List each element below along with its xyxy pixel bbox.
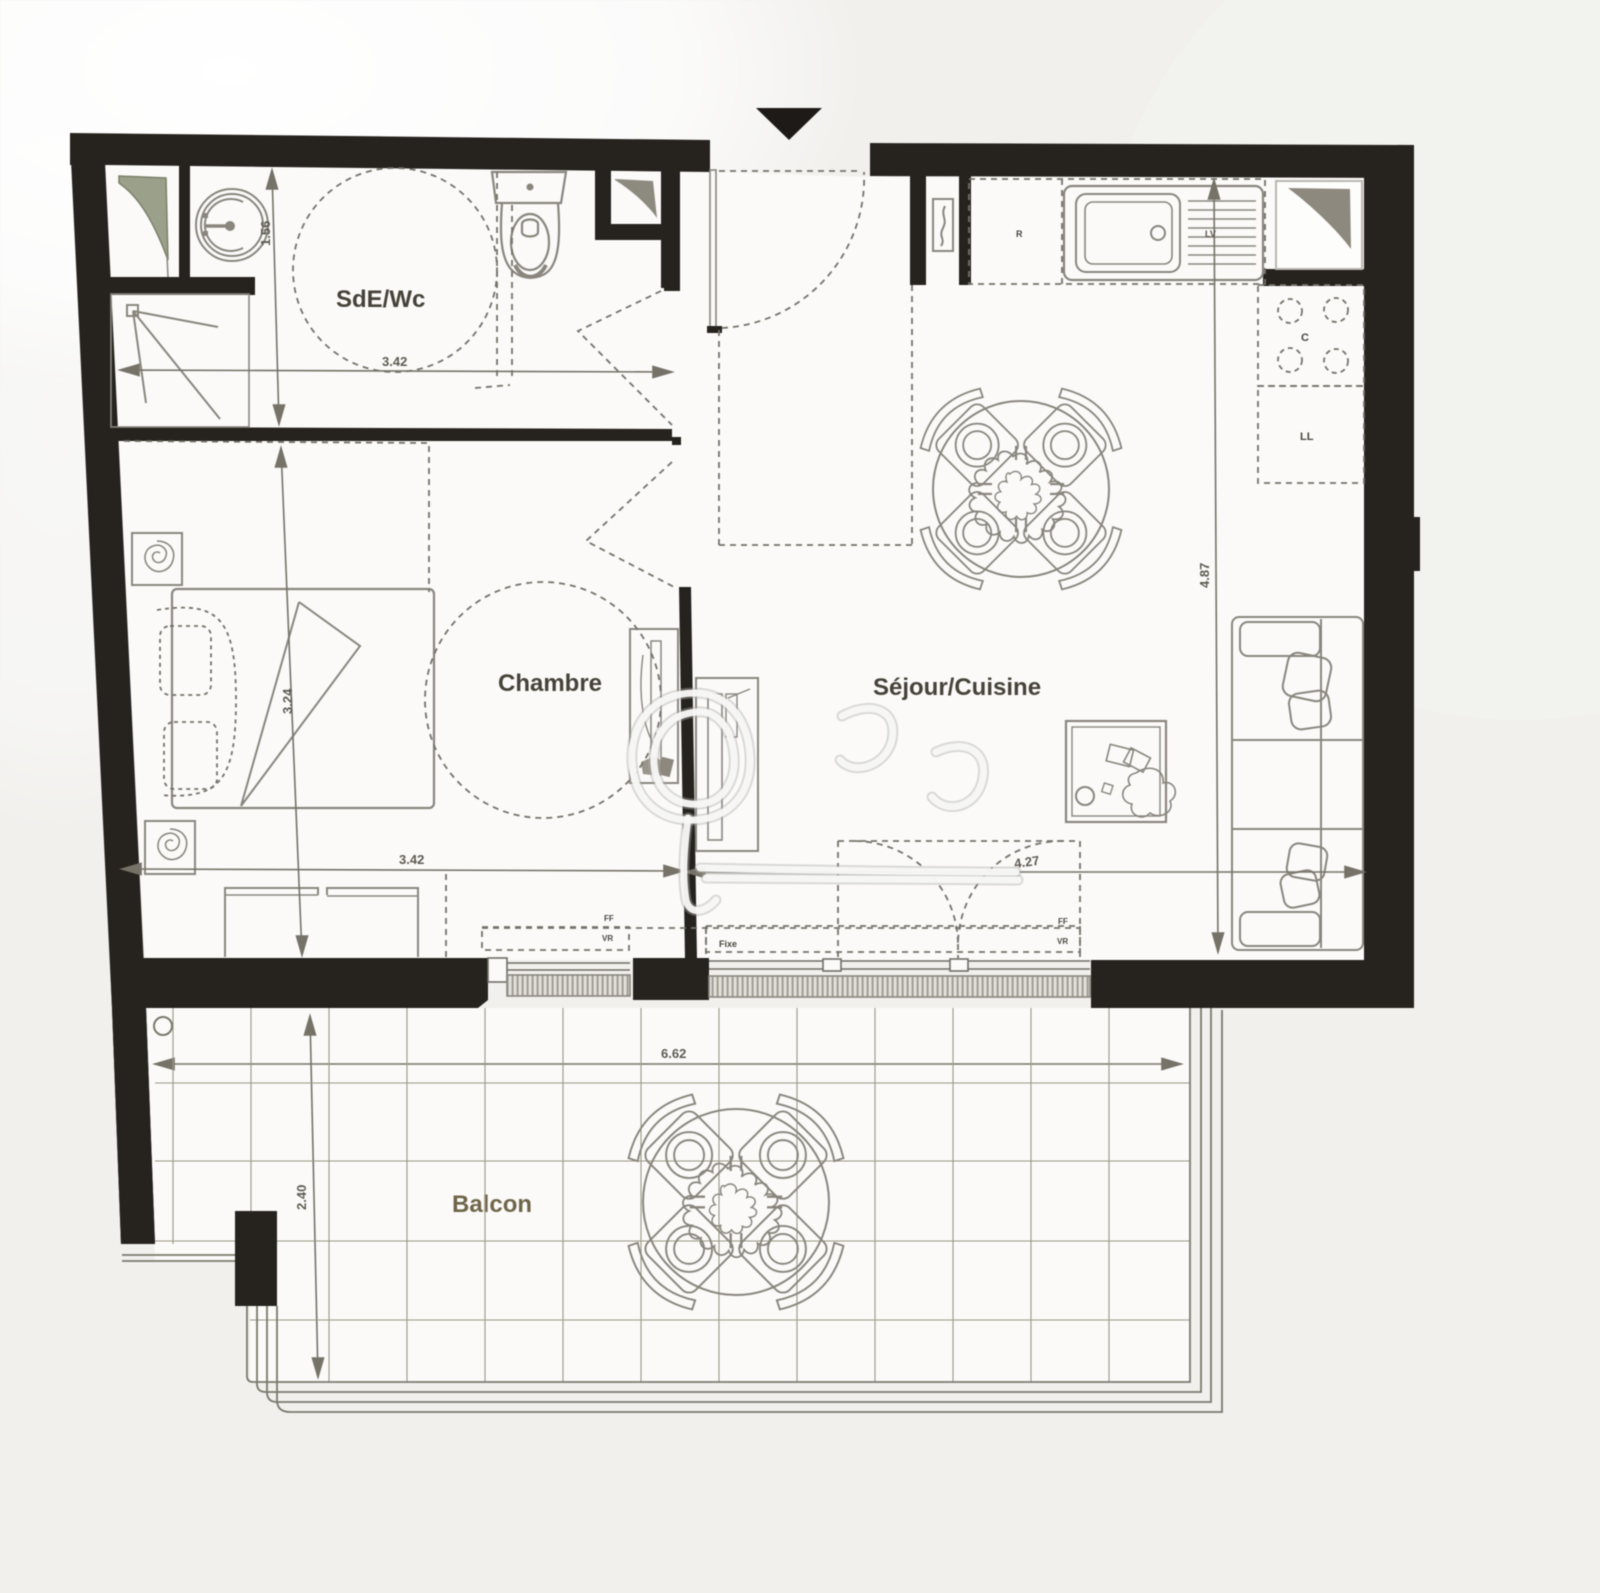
svg-text:3.24: 3.24 — [280, 688, 295, 714]
svg-text:Fixe: Fixe — [719, 939, 737, 949]
svg-text:R: R — [1016, 229, 1023, 239]
svg-text:FF: FF — [1058, 917, 1068, 926]
svg-text:Balcon: Balcon — [452, 1191, 532, 1218]
svg-text:FF: FF — [604, 914, 614, 923]
svg-text:4.87: 4.87 — [1197, 563, 1212, 588]
svg-text:3.42: 3.42 — [382, 354, 407, 369]
svg-text:VR: VR — [1057, 937, 1068, 946]
svg-text:C: C — [1301, 332, 1309, 344]
svg-text:2.40: 2.40 — [294, 1185, 309, 1210]
svg-text:LV: LV — [1205, 229, 1216, 239]
svg-text:1.56: 1.56 — [258, 221, 273, 246]
svg-text:6.62: 6.62 — [661, 1046, 686, 1061]
svg-text:3.42: 3.42 — [399, 852, 424, 867]
svg-text:Chambre: Chambre — [498, 670, 602, 697]
svg-text:VR: VR — [602, 934, 613, 943]
svg-text:LL: LL — [1300, 431, 1314, 443]
svg-text:Séjour/Cuisine: Séjour/Cuisine — [873, 674, 1041, 701]
svg-text:SdE/Wc: SdE/Wc — [336, 286, 425, 313]
